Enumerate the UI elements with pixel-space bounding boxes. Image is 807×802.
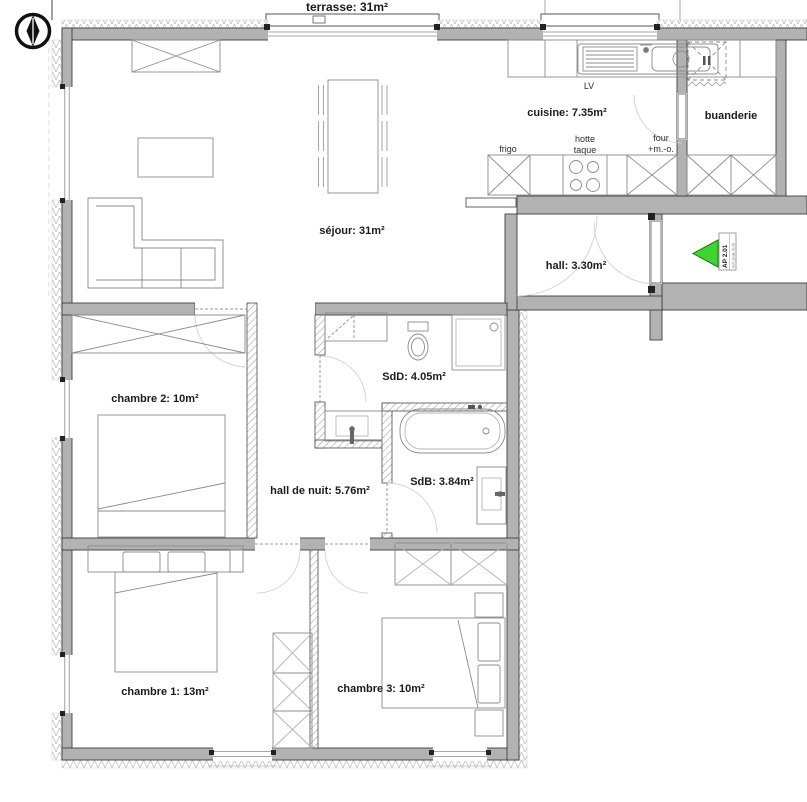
entrance-marker: AP 2.01 Surf. privat. 91.39 <box>693 233 736 270</box>
label-oven: four <box>653 133 669 143</box>
bed-chambre2 <box>98 415 225 537</box>
sofa <box>88 198 223 288</box>
cooktop <box>570 161 600 192</box>
entry-door-leaf <box>651 221 661 283</box>
pillow <box>478 623 500 661</box>
unit-tag-sub: Surf. privat. 91.39 <box>732 243 736 268</box>
room-label-terrasse: terrasse: 31m² <box>306 0 388 14</box>
floor-plan-page: terrasse: 31m² séjour: 31m² cuisine: 7.3… <box>0 0 807 802</box>
pillow <box>478 665 500 703</box>
label-dishwasher: LV <box>584 81 594 91</box>
label-microwave: +m.-o. <box>648 144 674 154</box>
sdb-washbasin <box>477 467 506 524</box>
kitchen-counter-bottom <box>488 155 677 195</box>
furniture-sejour <box>88 40 387 288</box>
room-label-sdd: SdD: 4.05m² <box>382 371 446 383</box>
wardrobe-chambre2 <box>72 315 245 353</box>
label-hood: hotte <box>575 134 595 144</box>
chambre2-furniture <box>72 315 245 537</box>
bedside-table <box>230 550 243 572</box>
bed-chambre1 <box>115 572 217 672</box>
bedside-table <box>475 593 503 617</box>
room-label-sejour: séjour: 31m² <box>319 225 385 237</box>
unit-tag-code: AP 2.01 <box>722 244 729 268</box>
dining-table <box>319 80 388 193</box>
sdb-fixtures <box>400 405 506 524</box>
chambre1-furniture <box>88 546 312 748</box>
pillow <box>123 552 160 572</box>
label-fridge: frigo <box>499 144 517 154</box>
tv-sideboard <box>132 40 220 72</box>
bedside-table <box>475 710 503 736</box>
kitchen-sink <box>578 44 718 74</box>
room-label-cuisine: cuisine: 7.35m² <box>527 107 607 119</box>
wardrobe-chambre1 <box>273 633 312 748</box>
toilet <box>408 322 428 360</box>
room-label-chambre1: chambre 1: 13m² <box>121 686 209 698</box>
room-label-chambre3: chambre 3: 10m² <box>337 683 425 695</box>
north-compass-icon <box>17 15 50 48</box>
buanderie-door-leaf <box>678 94 686 139</box>
sdd-washbasin <box>325 411 382 444</box>
entrance-arrow-icon <box>693 240 718 267</box>
sliding-door-leaf <box>466 198 516 207</box>
room-label-sdb: SdB: 3.84m² <box>410 476 474 488</box>
coffee-table <box>138 138 213 177</box>
shower-niche <box>325 313 387 341</box>
label-hob: taque <box>574 145 597 155</box>
kitchen-counter-top <box>508 40 776 77</box>
pillow <box>168 552 205 572</box>
shower-cabin <box>452 315 505 370</box>
fridge <box>488 155 530 195</box>
bathtub <box>400 405 505 453</box>
doors <box>195 94 686 593</box>
floor-plan-canvas: terrasse: 31m² séjour: 31m² cuisine: 7.3… <box>0 0 807 802</box>
room-label-hall-de-nuit: hall de nuit: 5.76m² <box>270 485 370 497</box>
room-label-buanderie: buanderie <box>705 110 758 122</box>
chambre3-furniture <box>382 543 507 736</box>
oven-cabinet <box>627 155 677 195</box>
room-label-hall: hall: 3.30m² <box>546 260 607 272</box>
window-jambs <box>60 24 660 755</box>
room-label-chambre2: chambre 2: 10m² <box>111 393 199 405</box>
